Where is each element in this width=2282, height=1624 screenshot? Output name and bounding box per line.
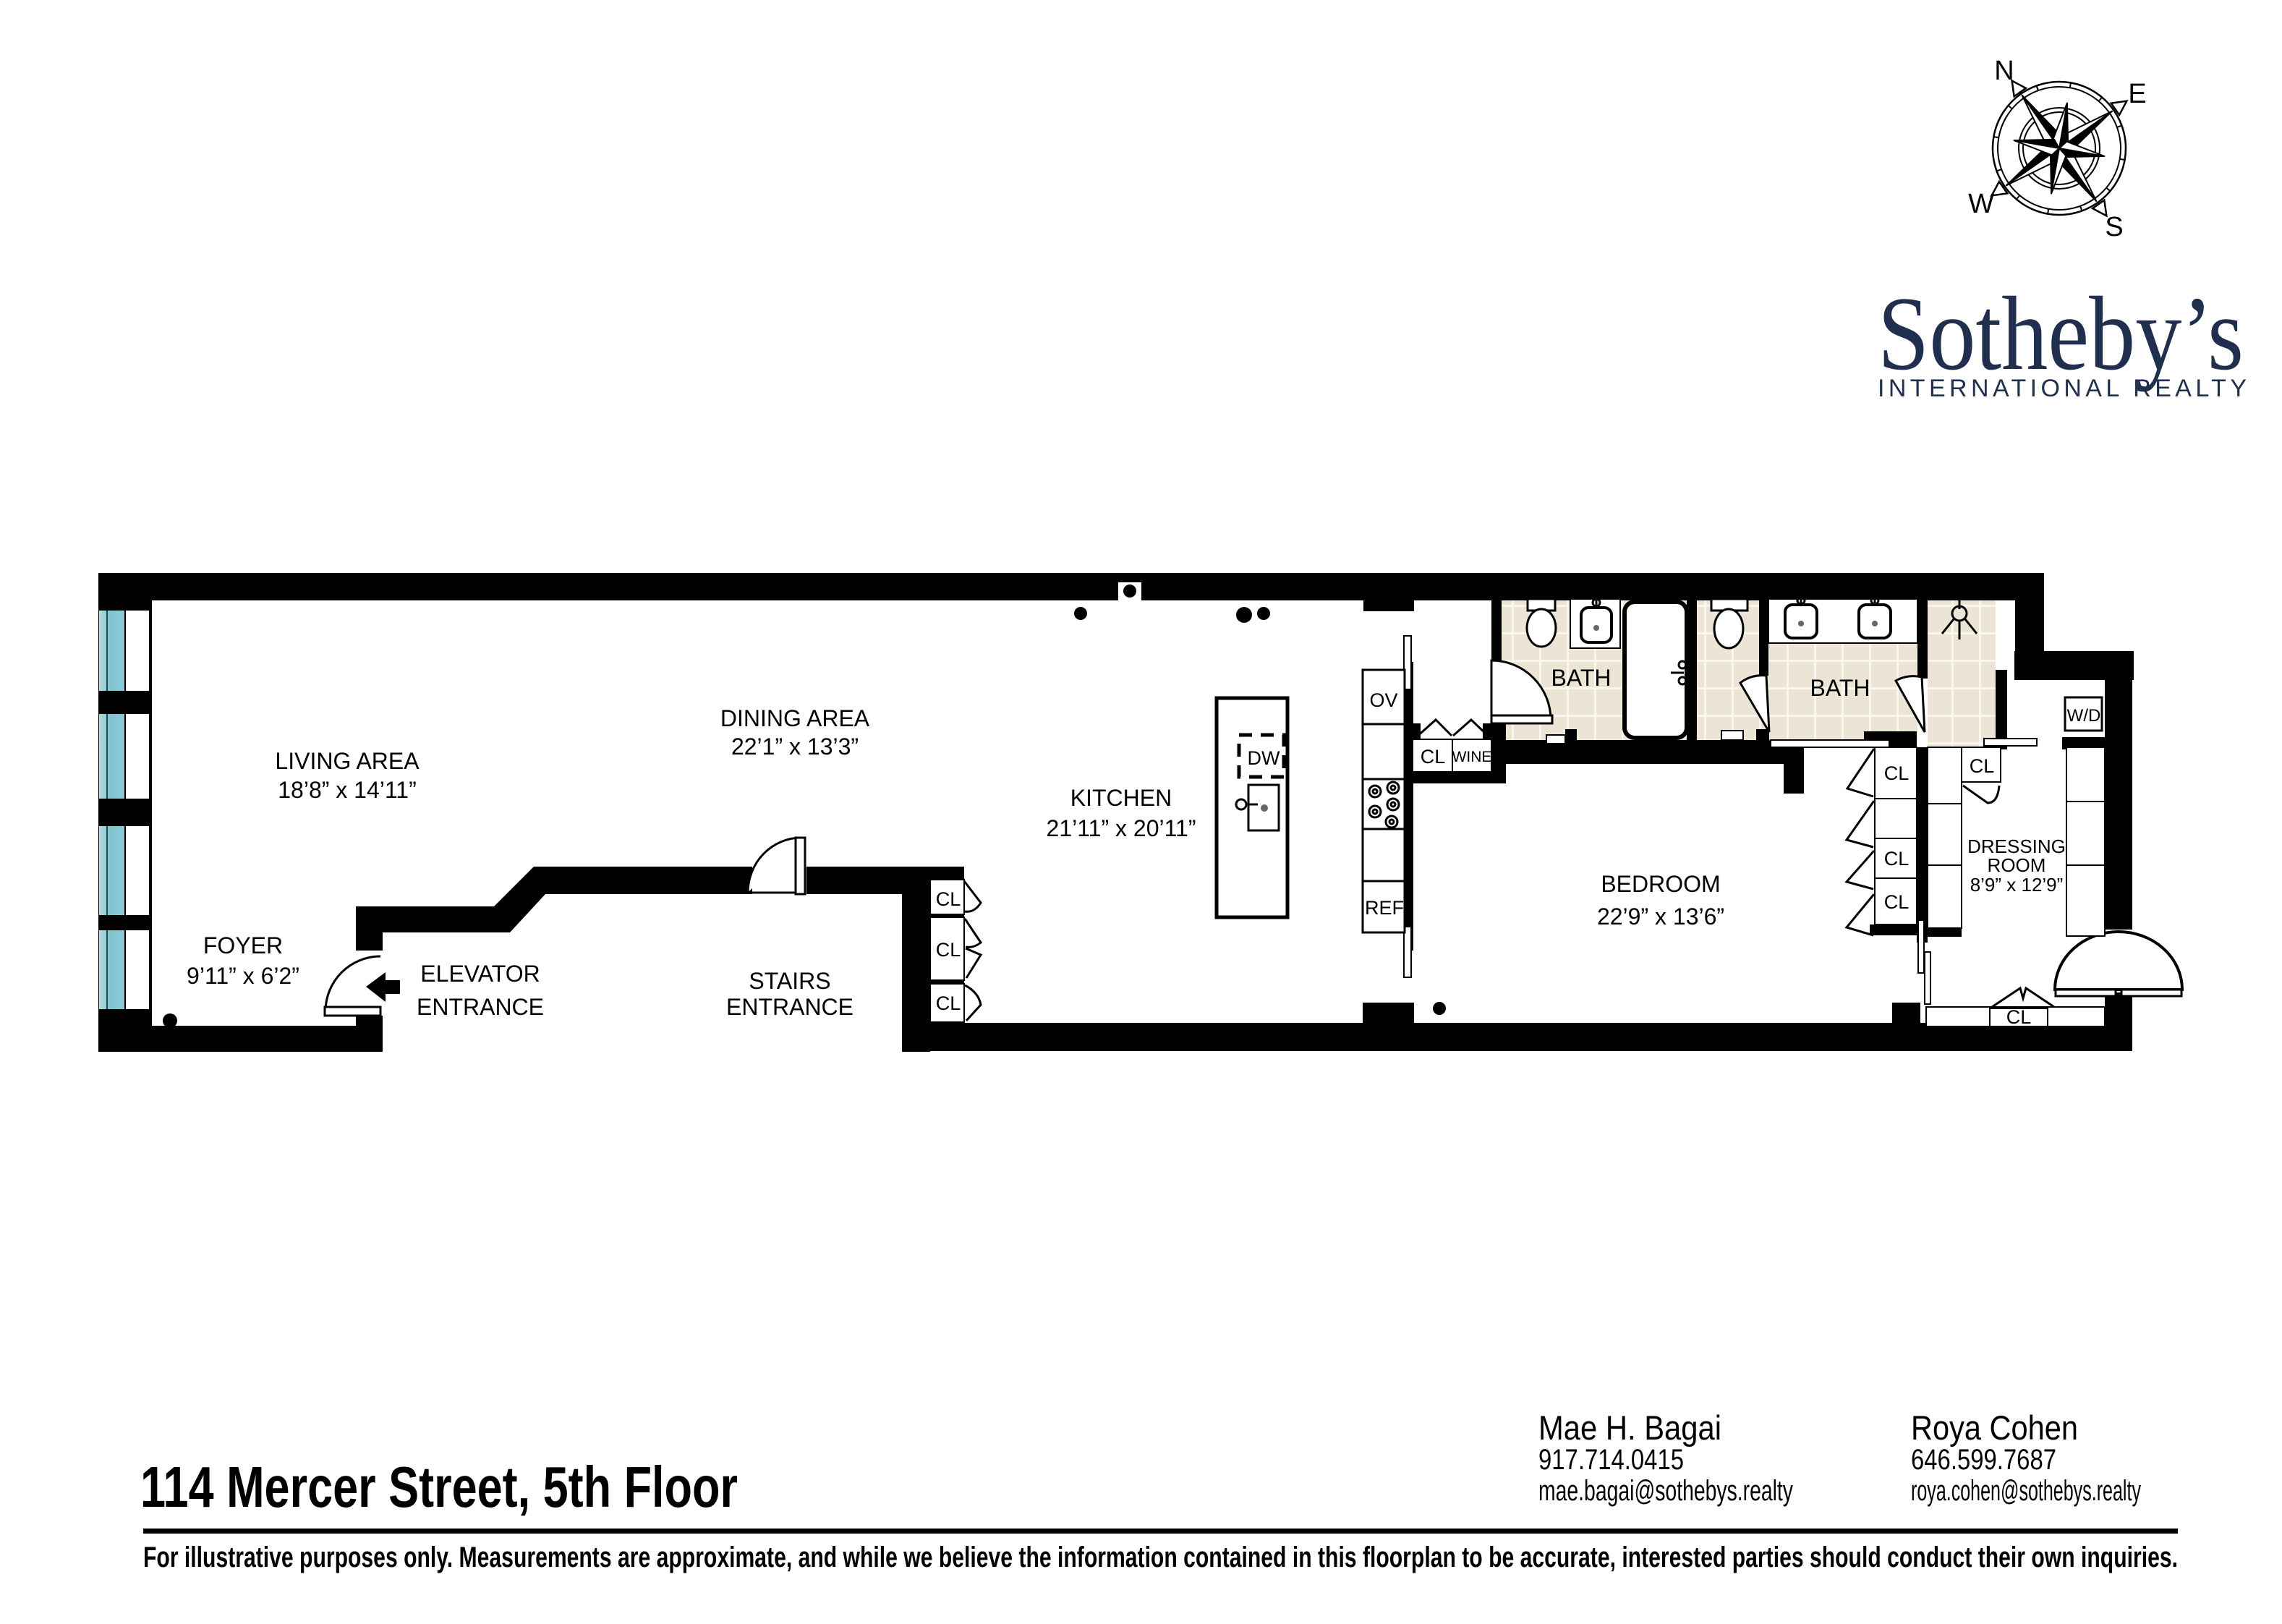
svg-text:CL: CL [1970, 755, 1995, 777]
svg-text:N: N [1994, 56, 2014, 86]
svg-text:ENTRANCE: ENTRANCE [417, 994, 544, 1020]
svg-text:BEDROOM: BEDROOM [1601, 871, 1720, 897]
svg-text:917.714.0415: 917.714.0415 [1538, 1444, 1684, 1476]
svg-text:DINING AREA: DINING AREA [720, 705, 870, 731]
svg-text:646.599.7687: 646.599.7687 [1911, 1444, 2056, 1476]
svg-text:For illustrative purposes only: For illustrative purposes only. Measurem… [143, 1542, 2178, 1573]
svg-text:DW: DW [1248, 747, 1280, 769]
svg-text:CL: CL [936, 888, 961, 910]
svg-text:W: W [1968, 189, 1994, 219]
svg-text:W/D: W/D [2067, 706, 2101, 726]
svg-text:CL: CL [936, 939, 961, 961]
svg-text:CL: CL [936, 992, 961, 1014]
svg-text:CL: CL [1884, 891, 1910, 913]
svg-text:8’9” x 12’9”: 8’9” x 12’9” [1970, 874, 2064, 896]
svg-text:BATH: BATH [1551, 665, 1612, 691]
svg-text:21’11” x 20’11”: 21’11” x 20’11” [1047, 815, 1196, 841]
svg-text:mae.bagai@sothebys.realty: mae.bagai@sothebys.realty [1538, 1475, 1793, 1507]
svg-text:LIVING AREA: LIVING AREA [275, 748, 420, 774]
svg-text:ENTRANCE: ENTRANCE [726, 994, 853, 1020]
svg-text:BATH: BATH [1810, 675, 1870, 701]
svg-text:ROOM: ROOM [1988, 854, 2046, 876]
svg-text:Roya Cohen: Roya Cohen [1911, 1408, 2078, 1447]
svg-text:STAIRS: STAIRS [749, 968, 830, 994]
svg-text:S: S [2105, 212, 2123, 242]
svg-text:WINE: WINE [1452, 749, 1492, 765]
svg-text:ELEVATOR: ELEVATOR [420, 961, 540, 987]
svg-text:E: E [2128, 79, 2146, 109]
svg-text:22’1” x 13’3”: 22’1” x 13’3” [731, 734, 859, 760]
svg-text:REF: REF [1365, 897, 1404, 919]
svg-text:KITCHEN: KITCHEN [1070, 785, 1172, 811]
svg-text:CL: CL [1884, 848, 1910, 870]
svg-text:18’8” x 14’11”: 18’8” x 14’11” [278, 777, 417, 803]
svg-text:114 Mercer Street, 5th Floor: 114 Mercer Street, 5th Floor [140, 1455, 738, 1519]
svg-text:CL: CL [1421, 746, 1446, 768]
svg-text:Mae H. Bagai: Mae H. Bagai [1538, 1408, 1721, 1447]
svg-text:CL: CL [1884, 762, 1910, 784]
svg-text:9’11” x 6’2”: 9’11” x 6’2” [187, 963, 299, 989]
svg-text:22’9” x 13’6”: 22’9” x 13’6” [1597, 904, 1724, 930]
svg-text:OV: OV [1369, 689, 1397, 711]
svg-text:CL: CL [2006, 1006, 2032, 1028]
svg-text:FOYER: FOYER [203, 932, 283, 958]
svg-text:roya.cohen@sothebys.realty: roya.cohen@sothebys.realty [1911, 1475, 2141, 1507]
